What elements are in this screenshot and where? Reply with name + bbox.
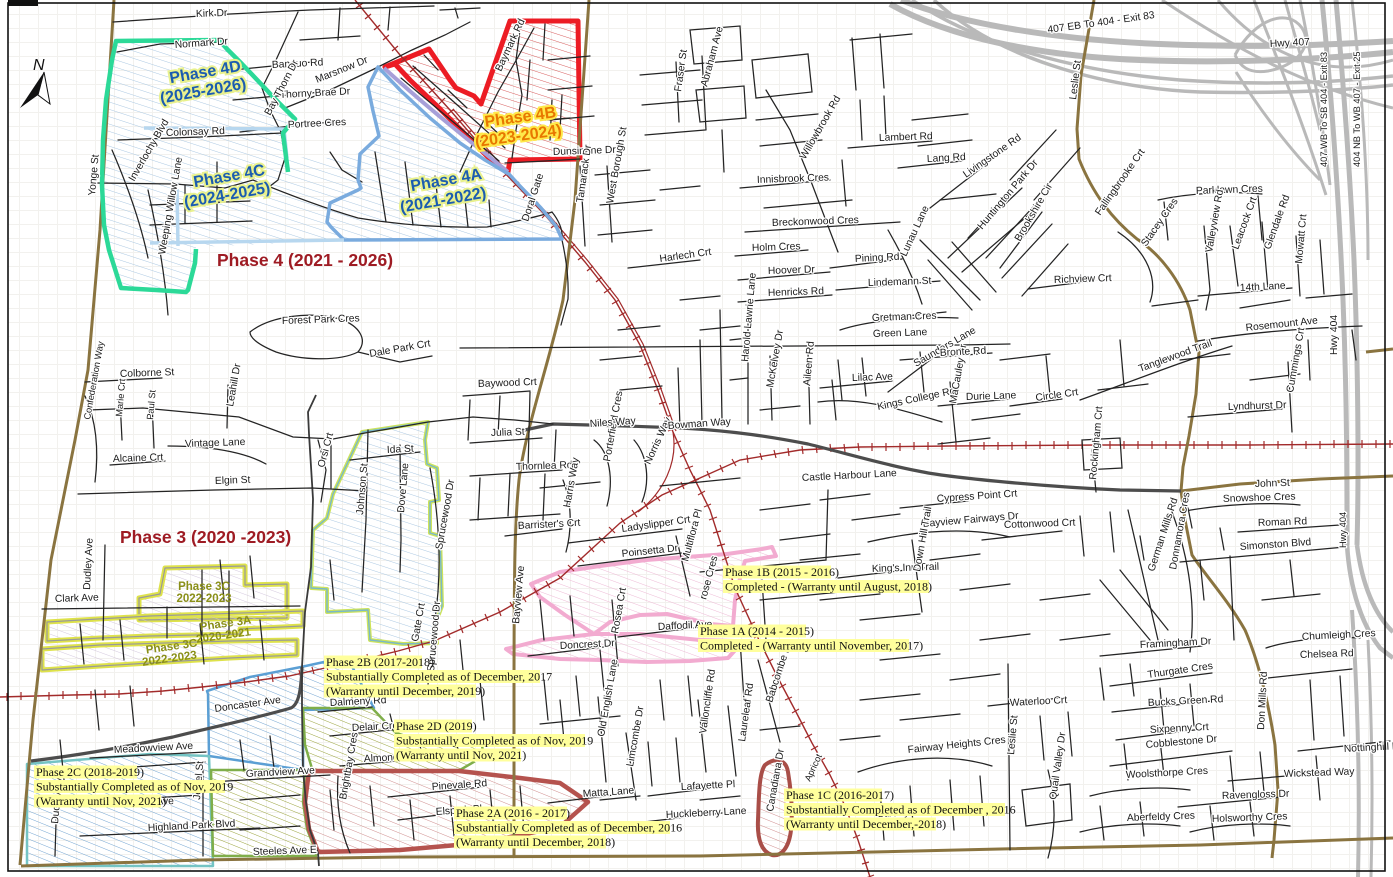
svg-text:Phase 2A (2016 - 2017): Phase 2A (2016 - 2017) <box>456 806 570 820</box>
svg-text:(Warranty until Nov, 2021): (Warranty until Nov, 2021) <box>396 748 526 762</box>
svg-text:Green Lane: Green Lane <box>873 327 928 340</box>
svg-text:Phase 2C (2018-2019): Phase 2C (2018-2019) <box>36 765 144 779</box>
svg-text:Elgin St: Elgin St <box>215 475 251 487</box>
svg-text:Henricks Rd: Henricks Rd <box>768 286 825 299</box>
svg-text:Phase 1C (2016-2017): Phase 1C (2016-2017) <box>786 788 894 802</box>
svg-text:(Warranty until December, 2018: (Warranty until December, 2018) <box>456 835 615 849</box>
svg-text:Hwy 404: Hwy 404 <box>1338 512 1348 548</box>
svg-text:Lilac Ave: Lilac Ave <box>852 372 894 384</box>
svg-text:King's Inn Trail: King's Inn Trail <box>872 562 940 575</box>
svg-text:Hwy 404: Hwy 404 <box>1329 315 1340 355</box>
svg-text:Hwy 407: Hwy 407 <box>1270 37 1311 50</box>
svg-text:Lang Rd: Lang Rd <box>927 152 967 165</box>
svg-text:Baywood Crt: Baywood Crt <box>478 377 537 390</box>
svg-text:404 NB To WB 407 - Exit 25: 404 NB To WB 407 - Exit 25 <box>1352 51 1362 167</box>
svg-text:Holm Cres: Holm Cres <box>752 241 801 254</box>
svg-text:Completed - (Warranty until A: Completed - (Warranty until August, 2018… <box>725 580 932 594</box>
svg-text:(Warranty until December,-2018: (Warranty until December,-2018) <box>786 817 946 831</box>
svg-text:Durie Lane: Durie Lane <box>966 390 1017 403</box>
svg-text:Kirk Dr: Kirk Dr <box>196 8 228 20</box>
svg-text:John St: John St <box>1255 478 1290 490</box>
svg-text:N: N <box>33 57 45 74</box>
svg-text:Phase 2D (2019): Phase 2D (2019) <box>396 719 477 733</box>
svg-text:Gretman Cres: Gretman Cres <box>872 311 937 324</box>
svg-text:Vintage Lane: Vintage Lane <box>185 437 246 450</box>
svg-text:Thornlea Rd: Thornlea Rd <box>516 460 573 473</box>
svg-text:Lindemann St: Lindemann St <box>868 276 932 289</box>
svg-text:Phase 1A (2014 - 2015): Phase 1A (2014 - 2015) <box>700 624 814 638</box>
svg-text:Colonsay Rd: Colonsay Rd <box>166 126 226 139</box>
svg-text:Hoover Dr: Hoover Dr <box>768 264 816 277</box>
svg-text:Roman Rd: Roman Rd <box>1258 516 1308 529</box>
svg-text:Phase 4 (2021 - 2026): Phase 4 (2021 - 2026) <box>217 250 393 270</box>
svg-text:Phase 2B (2017-2018): Phase 2B (2017-2018) <box>326 655 434 669</box>
svg-text:Richview Crt: Richview Crt <box>1054 273 1112 286</box>
svg-text:Chelsea Rd: Chelsea Rd <box>1300 648 1354 661</box>
svg-text:Lyndhurst Dr: Lyndhurst Dr <box>1228 400 1287 413</box>
svg-text:Phase 3 (2020 -2023): Phase 3 (2020 -2023) <box>120 527 291 547</box>
svg-text:(Warranty until Nov, 2021): (Warranty until Nov, 2021) <box>36 794 166 808</box>
svg-text:Substantially Completed as of: Substantially Completed as of Nov, 2019 <box>396 734 593 748</box>
svg-text:Pining Rd: Pining Rd <box>855 252 900 265</box>
svg-text:407 WB To SB 404 - Exit 83: 407 WB To SB 404 - Exit 83 <box>1319 52 1329 167</box>
svg-text:Clark Ave: Clark Ave <box>55 592 100 605</box>
svg-text:Phase 1B (2015 - 2016): Phase 1B (2015 - 2016) <box>725 565 839 579</box>
svg-text:Phase 3C: Phase 3C <box>178 581 230 593</box>
svg-text:Parklawn Cres: Parklawn Cres <box>1196 184 1263 197</box>
svg-text:(Warranty until December, 2019: (Warranty until December, 2019) <box>326 684 485 698</box>
svg-text:Colborne St: Colborne St <box>120 367 175 380</box>
svg-text:2022-2023: 2022-2023 <box>177 593 232 605</box>
svg-text:Substantially Completed as of: Substantially Completed as of December ,… <box>786 803 1016 817</box>
svg-text:Alcaine Crt: Alcaine Crt <box>113 452 164 465</box>
svg-text:Julia St: Julia St <box>491 427 525 439</box>
svg-text:Steeles Ave E: Steeles Ave E <box>253 845 317 858</box>
svg-text:Substantially Completed as of: Substantially Completed as of December, … <box>456 821 682 835</box>
svg-text:Completed - (Warranty until No: Completed - (Warranty until November, 20… <box>700 639 923 653</box>
svg-text:Substantially Completed as of: Substantially Completed as of December, … <box>326 670 552 684</box>
svg-text:Lambert Rd: Lambert Rd <box>879 131 933 144</box>
svg-text:Substantially Completed as of: Substantially Completed as of Nov, 2019 <box>36 780 233 794</box>
svg-text:Ida St: Ida St <box>387 444 415 456</box>
